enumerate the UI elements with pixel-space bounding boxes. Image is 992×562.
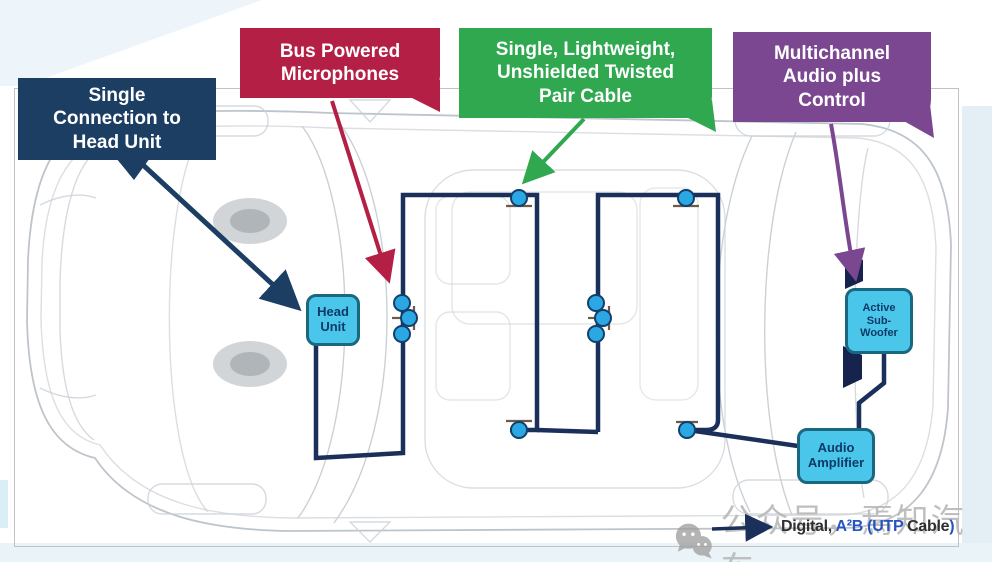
head-unit-arrow [142,164,296,306]
callout-label: Bus Powered Microphones [280,40,400,86]
microphones-arrow [332,101,388,278]
active-subwoofer-box: Active Sub- Woofer [845,288,913,354]
callout-utp-cable: Single, Lightweight, Unshielded Twisted … [459,28,712,118]
microphone-node [595,310,611,326]
callout-label: Single, Lightweight, Unshielded Twisted … [496,38,675,108]
callout-single-connection: Single Connection to Head Unit [18,78,216,160]
speaker-node [679,422,695,438]
utp-cable-arrow [526,119,584,180]
legend-label: Digital, A²B (UTP Cable) [781,518,954,536]
callout-label: Multichannel Audio plus Control [774,42,890,112]
speaker-node [511,190,527,206]
speaker-node [511,422,527,438]
slide: 公众号，焉知汽车 [0,0,992,562]
legend-part: Digital, [781,518,836,535]
component-label: Head Unit [317,305,349,335]
legend-part: Cable [907,518,949,535]
bus-nodes [394,190,695,438]
microphone-node [394,326,410,342]
legend-cable-sample [712,527,768,529]
microphone-node [394,295,410,311]
microphone-node [588,326,604,342]
legend-part: ) [949,518,954,535]
node-brackets [392,206,699,422]
legend-part: A²B (UTP [836,518,908,535]
callout-label: Single Connection to Head Unit [53,84,181,154]
component-label: Audio Amplifier [808,441,864,471]
microphone-node [401,310,417,326]
callout-multichannel-audio: Multichannel Audio plus Control [733,32,931,122]
component-label: Active Sub- Woofer [860,302,898,340]
speaker-node [678,190,694,206]
microphone-node [588,295,604,311]
callout-bus-powered-microphones: Bus Powered Microphones [240,28,440,98]
audio-amplifier-box: Audio Amplifier [797,428,875,484]
subwoofer-arrow [831,124,855,276]
head-unit-box: Head Unit [306,294,360,346]
